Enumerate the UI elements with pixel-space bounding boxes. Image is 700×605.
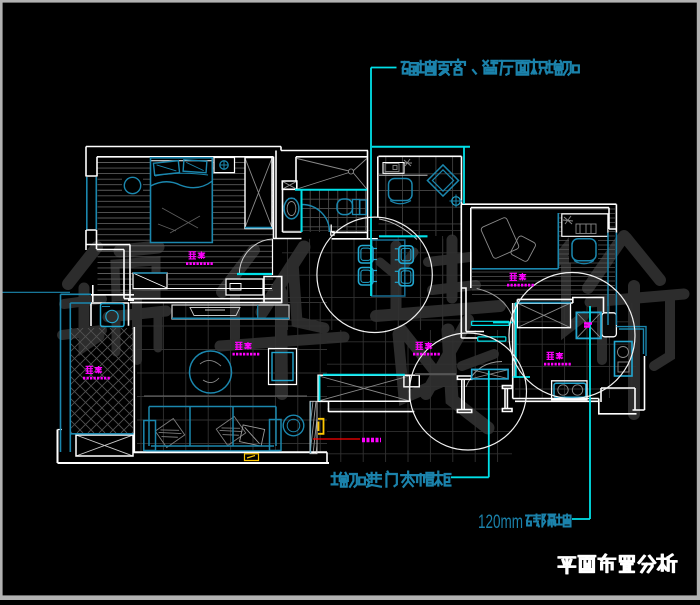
svg-text:120mm: 120mm bbox=[478, 512, 523, 533]
